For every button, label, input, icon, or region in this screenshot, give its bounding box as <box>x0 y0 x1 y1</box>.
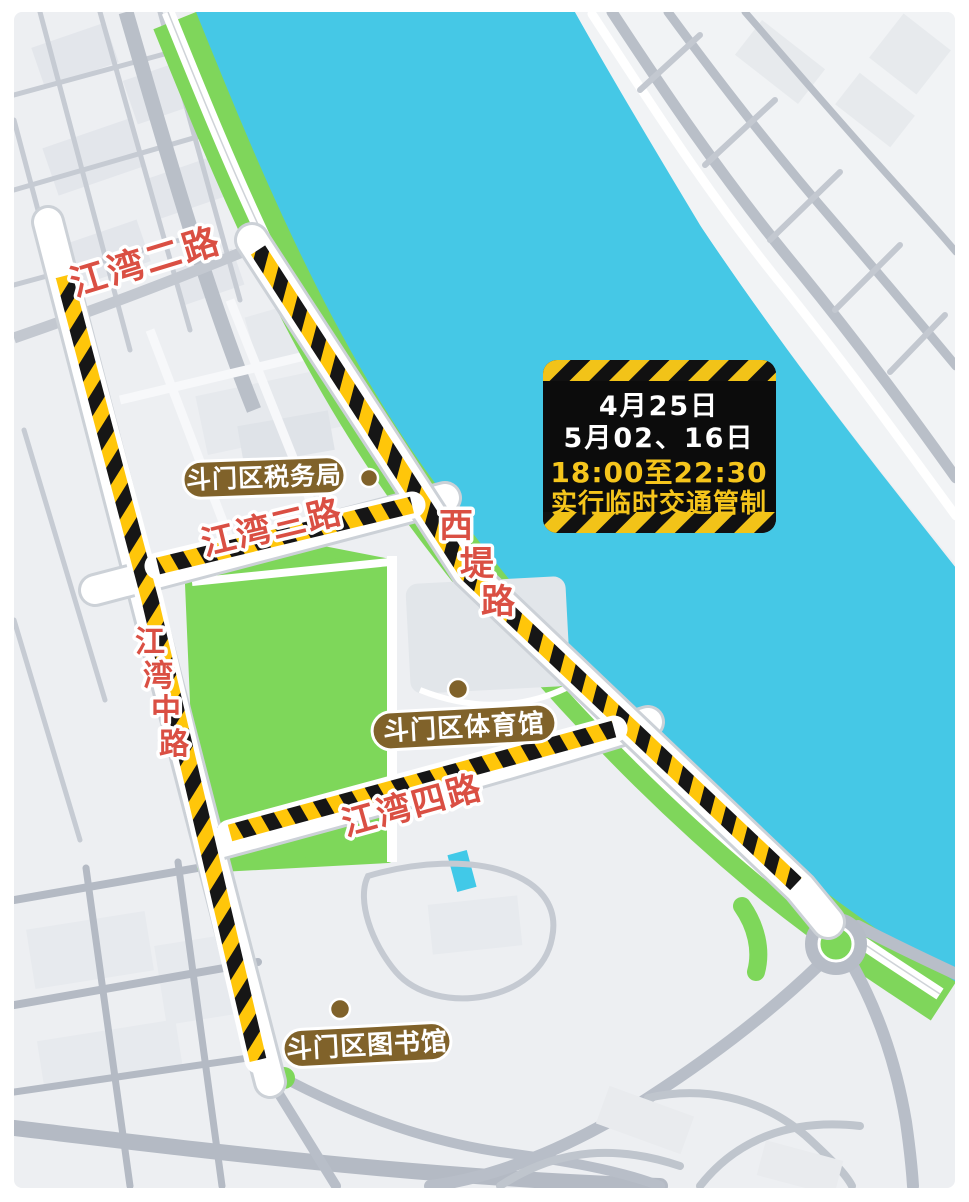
poi-tax-bureau: 斗门区税务局 <box>182 456 345 499</box>
notice-date-2: 5月02、16日 <box>564 423 755 454</box>
notice-box: 4月25日 5月02、16日 18:00至22:30 实行临时交通管制 <box>543 360 776 533</box>
xidi-char-2: 堤 <box>460 544 495 584</box>
map-canvas: 江湾二路 江湾三路 江湾四路 西 堤 路 江 湾 中 路 斗门区税务局 斗门区体… <box>0 0 969 1202</box>
library-building <box>428 895 523 954</box>
poi-library: 斗门区图书馆 <box>282 1022 452 1069</box>
poi-tax-dot <box>360 469 378 487</box>
notice-message: 实行临时交通管制 <box>551 488 767 519</box>
zhong-char-4: 路 <box>159 727 190 762</box>
zhong-char-1: 江 <box>135 625 165 660</box>
notice-stripe-top <box>543 360 776 381</box>
traffic-control-map: 江湾二路 江湾三路 江湾四路 西 堤 路 江 湾 中 路 斗门区税务局 斗门区体… <box>0 0 969 1202</box>
poi-library-dot <box>330 999 350 1019</box>
zhong-char-3: 中 <box>151 693 181 728</box>
zhong-char-2: 湾 <box>143 659 173 694</box>
poi-tax-label: 斗门区税务局 <box>186 460 343 494</box>
notice-time: 18:00至22:30 <box>550 456 767 489</box>
notice-date-1: 4月25日 <box>599 391 719 422</box>
poi-stadium-dot <box>448 679 468 699</box>
poi-stadium: 斗门区体育馆 <box>371 703 557 751</box>
xidi-char-3: 路 <box>481 582 516 622</box>
xidi-char-1: 西 <box>439 506 473 546</box>
